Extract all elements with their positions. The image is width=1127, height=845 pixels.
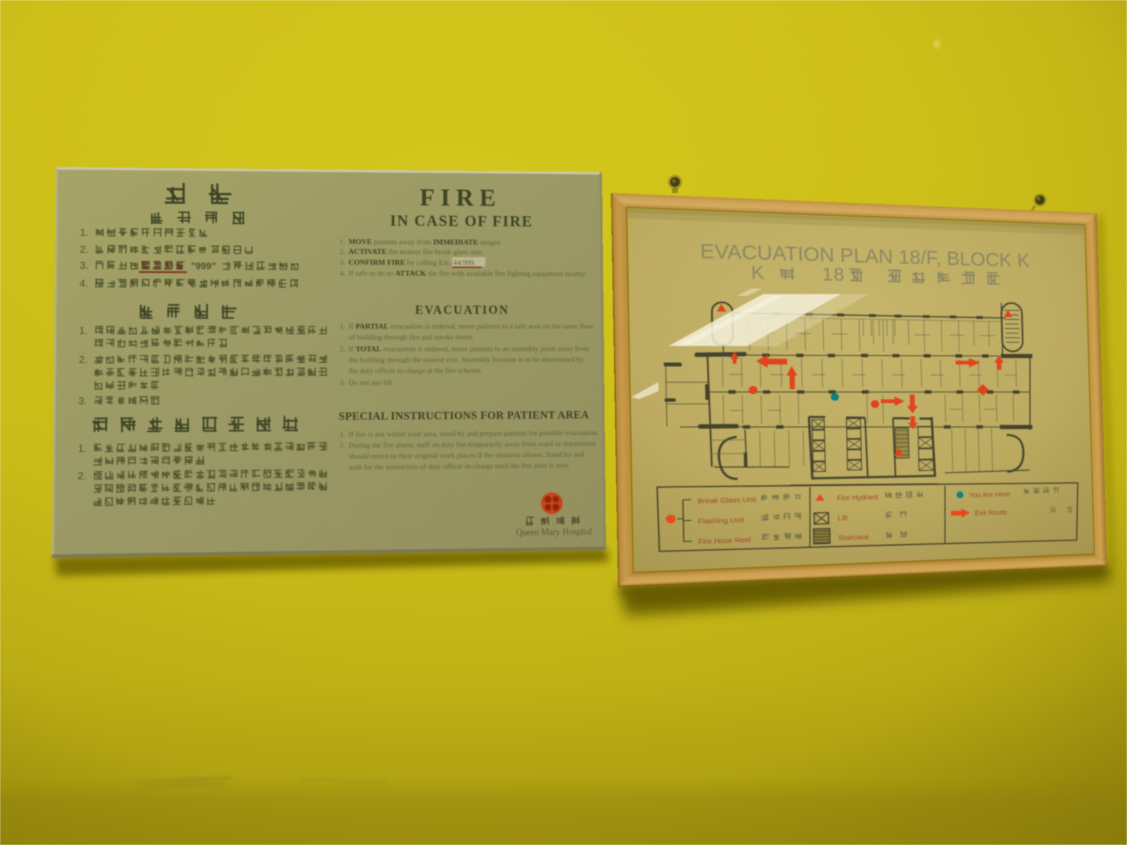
- svg-text:2.: 2.: [340, 345, 346, 354]
- svg-text:1.: 1.: [79, 326, 88, 337]
- svg-text:If fire is not within your are: If fire is not within your area, stand b…: [349, 428, 600, 439]
- svg-text:of building through fire and s: of building through fire and smoke doors…: [349, 333, 474, 342]
- svg-text:Exit Route: Exit Route: [975, 508, 1008, 517]
- svg-text:1.: 1.: [340, 430, 346, 439]
- svg-text:MOVE patients away from IMMEDI: MOVE patients away from IMMEDIATE danger…: [349, 237, 502, 246]
- svg-text:Lift: Lift: [838, 513, 849, 522]
- svg-text:4.: 4.: [79, 279, 88, 290]
- svg-text:If TOTAL evacuation is ordered: If TOTAL evacuation is ordered, move pat…: [349, 344, 590, 353]
- svg-text:If PARTIAL evacuation is order: If PARTIAL evacuation is ordered, move p…: [349, 322, 595, 331]
- svg-text:SPECIAL INSTRUCTIONS FOR PATIE: SPECIAL INSTRUCTIONS FOR PATIENT AREA: [339, 410, 590, 423]
- svg-text:the building through the neare: the building through the nearest exit. A…: [349, 355, 584, 364]
- svg-text:2.: 2.: [79, 355, 88, 366]
- svg-text:1.: 1.: [340, 237, 346, 246]
- svg-text:EVACUATION: EVACUATION: [415, 303, 509, 317]
- svg-text:Flashing Unit: Flashing Unit: [698, 515, 745, 525]
- svg-text:2.: 2.: [78, 471, 87, 482]
- svg-text:2.: 2.: [340, 441, 346, 450]
- svg-text:2.: 2.: [340, 247, 346, 256]
- svg-text:Do not use lift.: Do not use lift.: [349, 378, 394, 387]
- svg-text:3.: 3.: [80, 261, 89, 272]
- svg-text:"999": "999": [191, 261, 216, 272]
- svg-text:Queen Mary Hospital: Queen Mary Hospital: [516, 527, 593, 538]
- svg-text:1.: 1.: [340, 322, 346, 331]
- svg-text:1.: 1.: [80, 228, 89, 239]
- svg-text:4.: 4.: [340, 269, 346, 278]
- svg-text:Staircase: Staircase: [838, 532, 869, 542]
- svg-text:ACTIVATE the nearest fire brea: ACTIVATE the nearest fire break glass un…: [349, 247, 484, 256]
- svg-text:Fire Hydrant: Fire Hydrant: [837, 493, 879, 502]
- svg-text:Fire Hose Reel: Fire Hose Reel: [698, 535, 751, 545]
- svg-text:44/999.: 44/999.: [453, 258, 476, 267]
- svg-text:You Are Here: You Are Here: [969, 490, 1011, 499]
- svg-text:3.: 3.: [78, 396, 87, 407]
- svg-text:2.: 2.: [80, 245, 89, 256]
- svg-text:3.: 3.: [340, 378, 346, 387]
- svg-text:the duty officer in-charge at: the duty officer in-charge at the fire s…: [349, 366, 482, 375]
- svg-text:18: 18: [822, 264, 846, 285]
- svg-text:FIRE: FIRE: [420, 185, 502, 212]
- svg-text:IN CASE OF FIRE: IN CASE OF FIRE: [390, 213, 533, 230]
- svg-text:1.: 1.: [78, 444, 87, 455]
- svg-text:3.: 3.: [340, 258, 346, 267]
- svg-text:K: K: [751, 262, 765, 283]
- svg-text:If safe to do so ATTACK the fi: If safe to do so ATTACK the fire with av…: [349, 269, 587, 278]
- svg-text:Break Glass Unit: Break Glass Unit: [697, 495, 757, 505]
